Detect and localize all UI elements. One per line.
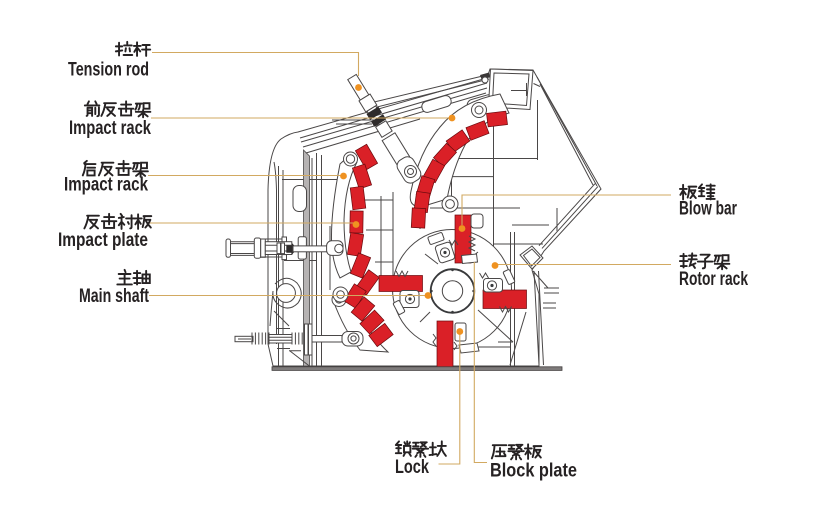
svg-text:Rotor rack: Rotor rack [679,269,748,290]
svg-text:Block plate: Block plate [490,461,577,482]
svg-text:Tension rod: Tension rod [68,60,149,81]
svg-text:Impact rack: Impact rack [69,118,151,139]
svg-text:Blow bar: Blow bar [679,199,737,220]
svg-text:Lock: Lock [395,457,429,478]
svg-text:Main shaft: Main shaft [79,286,150,307]
svg-text:Impact rack: Impact rack [64,175,148,196]
svg-text:Impact plate: Impact plate [58,230,148,251]
